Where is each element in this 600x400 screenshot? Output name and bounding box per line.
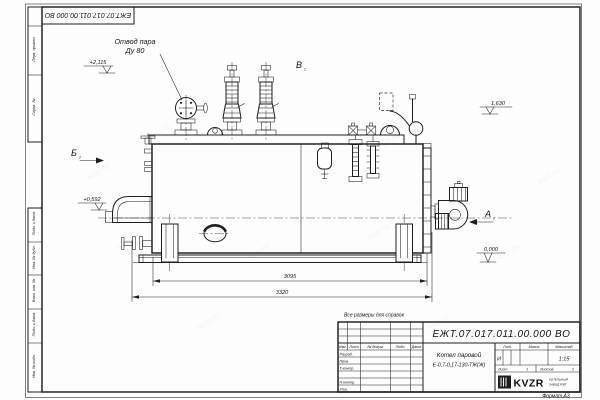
- col-izm: Изм.: [339, 345, 347, 349]
- support-leg-right: [396, 224, 413, 262]
- row-nkontr: Н.контр.: [340, 381, 356, 385]
- company-block: KVZR КОТЕЛЬНЫЙ ЗАВОД РЭП: [498, 376, 569, 390]
- view-label-v: В 2: [296, 60, 306, 72]
- product-name: Котел паровой: [437, 352, 482, 359]
- lit-label: Лит.: [502, 345, 512, 349]
- margin-label-perv-primen: Перв. примен.: [32, 36, 36, 61]
- dim-3095-value: 3095: [284, 274, 297, 280]
- water-level-gauge-2: [367, 135, 379, 178]
- steam-outlet-callout: Отвод пара Ду 80: [114, 37, 182, 100]
- margin-label-inv-podl: Инв. № подл.: [32, 354, 36, 378]
- view-b-sub: 2: [78, 156, 81, 160]
- title-doc-number: ЕЖТ.07.017.011.00.000 ВО: [433, 329, 571, 340]
- margin-label-sprav-no: Справ. №: [32, 98, 36, 115]
- manometer-phantom-outline: [380, 93, 394, 111]
- row-prov: Пров.: [340, 360, 350, 364]
- elev-1630-value: 1,630: [491, 101, 506, 107]
- scale-value: 1:15: [559, 357, 571, 363]
- svg-text:kvzr.ru: kvzr.ru: [376, 131, 401, 151]
- lifting-lug-small: [208, 128, 223, 136]
- view-a-sub: 2: [492, 217, 495, 221]
- col-data: Дата: [411, 345, 422, 349]
- svg-text:kvzr.ru: kvzr.ru: [146, 121, 171, 141]
- col-dokum: № докум.: [367, 345, 383, 349]
- rear-flange-ring: [423, 144, 431, 254]
- elev-0000-value: 0,000: [484, 247, 499, 253]
- support-leg-left: [162, 224, 179, 262]
- level-column-capsule: [318, 143, 332, 179]
- svg-text:kvzr.ru: kvzr.ru: [366, 221, 391, 241]
- reference-note: Все размеры для справок: [344, 313, 405, 319]
- elev-0592-value: +0,592: [83, 197, 101, 203]
- steam-outlet-label-line1: Отвод пара: [114, 37, 155, 46]
- view-a-arrow: [469, 219, 477, 225]
- svg-text:kvzr.ru: kvzr.ru: [116, 231, 141, 251]
- elevation-mark-0592: +0,592: [78, 197, 107, 210]
- dim-3320-value: 3320: [276, 290, 289, 296]
- stamp-doc-number: ЕЖТ.07.017.011.00.000 ВО: [44, 11, 131, 18]
- svg-text:kvzr.ru: kvzr.ru: [536, 166, 561, 186]
- col-podp: Подп.: [396, 345, 406, 349]
- masshtab-label: Масштаб: [555, 345, 573, 349]
- company-sub2: ЗАВОД РЭП: [549, 383, 567, 387]
- massa-label: Масса: [529, 345, 540, 349]
- view-label-b: Б 2: [71, 148, 104, 164]
- company-sub1: КОТЕЛЬНЫЙ: [549, 378, 569, 382]
- col-list: Лист: [348, 345, 359, 349]
- row-utv: Утв.: [340, 388, 348, 392]
- svg-text:kvzr.ru: kvzr.ru: [246, 241, 271, 261]
- svg-text:kvzr.ru: kvzr.ru: [496, 241, 521, 261]
- product-model: Е-0,7-0,17-130-ТЖ(Ж): [433, 363, 486, 369]
- margin-label-inv-dubl: Инв. № дубл.: [32, 245, 36, 268]
- title-block: ЕЖТ.07.017.011.00.000 ВО Изм. Лист № док…: [338, 322, 580, 392]
- elevation-mark-2115: +2,115: [84, 60, 115, 73]
- margin-label-podp-data-1: Подп. и дата: [32, 212, 36, 236]
- svg-text:kvzr.ru: kvzr.ru: [196, 311, 221, 331]
- boiler-shell: [149, 135, 423, 253]
- lit-value: И: [497, 357, 501, 363]
- company-name: KVZR: [514, 378, 544, 390]
- safety-valve-1: [222, 66, 245, 136]
- margin-label-vzam-inv: Взам. инв. №: [32, 279, 36, 302]
- steam-outlet-label-line2: Ду 80: [125, 46, 145, 55]
- elev-2115-value: +2,115: [90, 60, 108, 66]
- view-a-letter: А: [484, 209, 491, 219]
- list-label: Лист: [497, 367, 508, 371]
- listov-label: Листов: [539, 367, 554, 371]
- drawing-sheet: kvzr.ru kvzr.ru kvzr.ru kvzr.ru kvzr.ru …: [0, 0, 600, 400]
- format-label: Формат А3: [542, 394, 570, 400]
- view-v-letter: В: [296, 60, 302, 70]
- list-value: 1: [526, 367, 528, 371]
- steam-outlet-valve: [175, 98, 207, 136]
- lifting-lug-main: [378, 126, 402, 136]
- manometer-siphon: [380, 93, 423, 144]
- boiler-side-view: 3095 3320 +2,115 +0,592 1,630: [71, 37, 512, 302]
- view-v-sub: 2: [303, 68, 306, 72]
- view-b-letter: Б: [71, 148, 77, 158]
- svg-text:kvzr.ru: kvzr.ru: [86, 161, 111, 181]
- feed-pump-unit: [431, 182, 468, 230]
- listov-value: 2: [571, 367, 574, 371]
- row-tkontr: Т.контр.: [340, 367, 355, 371]
- view-label-a: А 2: [469, 209, 495, 225]
- company-logo-mark: [498, 376, 511, 389]
- margin-labels: Перв. примен. Справ. № Подп. и дата Инв.…: [32, 36, 36, 377]
- thermometer-well: [410, 95, 416, 122]
- margin-label-podp-data-2: Подп. и дата: [32, 313, 36, 337]
- row-razrab: Разраб.: [340, 353, 353, 357]
- gauge-shutoff-valves: [349, 123, 376, 135]
- gas-duct-elbow: [106, 197, 153, 223]
- centerlines: [98, 62, 512, 272]
- water-level-gauge-1: [349, 135, 362, 182]
